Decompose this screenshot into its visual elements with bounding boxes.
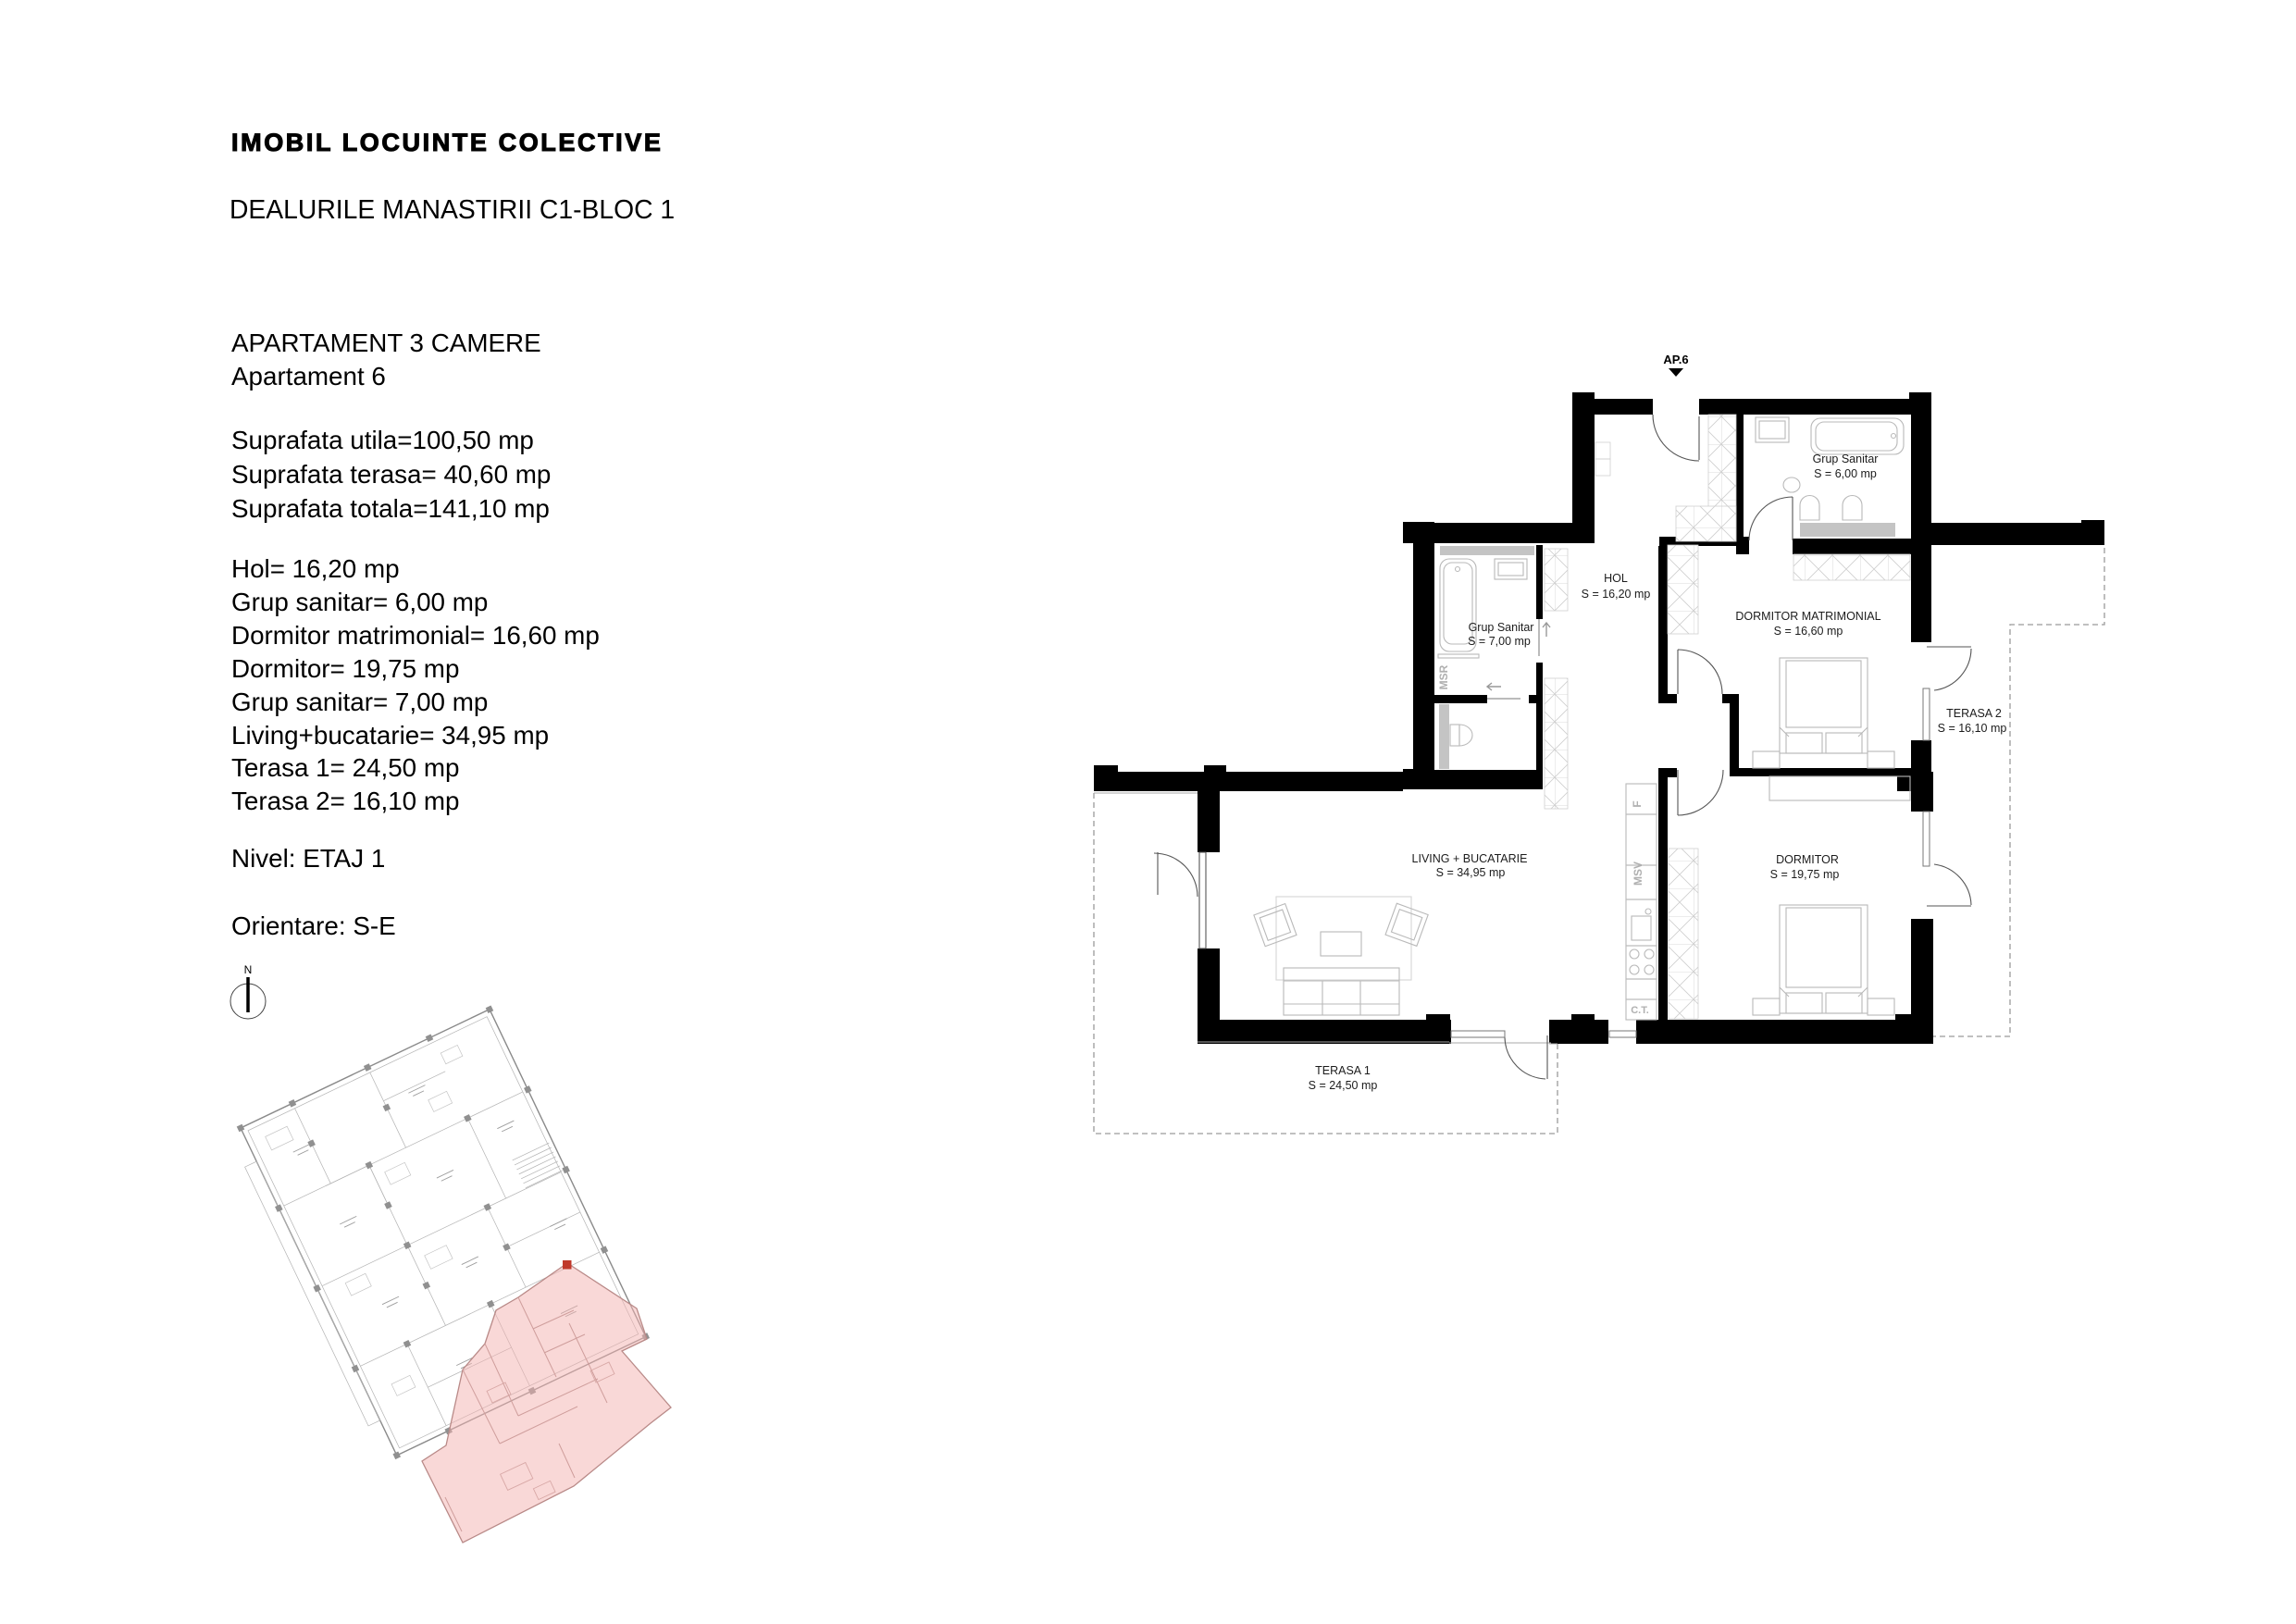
svg-text:TERASA 2: TERASA 2 (1946, 707, 2002, 720)
svg-text:S = 19,75 mp: S = 19,75 mp (1770, 868, 1840, 881)
svg-text:S = 16,60 mp: S = 16,60 mp (1774, 625, 1843, 638)
svg-text:MSR: MSR (1437, 664, 1450, 689)
svg-text:Grup Sanitar: Grup Sanitar (1469, 621, 1534, 634)
svg-text:S = 24,50 mp: S = 24,50 mp (1309, 1079, 1378, 1092)
svg-text:S = 16,10 mp: S = 16,10 mp (1938, 722, 2007, 735)
svg-text:S = 6,00 mp: S = 6,00 mp (1814, 467, 1877, 480)
svg-text:S = 16,20 mp: S = 16,20 mp (1582, 588, 1651, 601)
svg-text:TERASA 1: TERASA 1 (1315, 1064, 1371, 1077)
svg-text:S = 7,00 mp: S = 7,00 mp (1468, 635, 1531, 648)
svg-text:F: F (1631, 800, 1644, 807)
svg-text:DORMITOR: DORMITOR (1776, 853, 1839, 866)
svg-text:HOL: HOL (1604, 572, 1628, 585)
svg-text:LIVING + BUCATARIE: LIVING + BUCATARIE (1412, 852, 1528, 865)
svg-text:DORMITOR MATRIMONIAL: DORMITOR MATRIMONIAL (1735, 610, 1880, 623)
svg-text:MSV: MSV (1632, 862, 1644, 886)
svg-text:C.T.: C.T. (1631, 1005, 1649, 1016)
svg-text:N: N (244, 963, 253, 976)
svg-text:S = 34,95 mp: S = 34,95 mp (1436, 866, 1506, 879)
svg-text:AP.6: AP.6 (1663, 353, 1688, 366)
svg-text:Grup Sanitar: Grup Sanitar (1813, 452, 1879, 465)
